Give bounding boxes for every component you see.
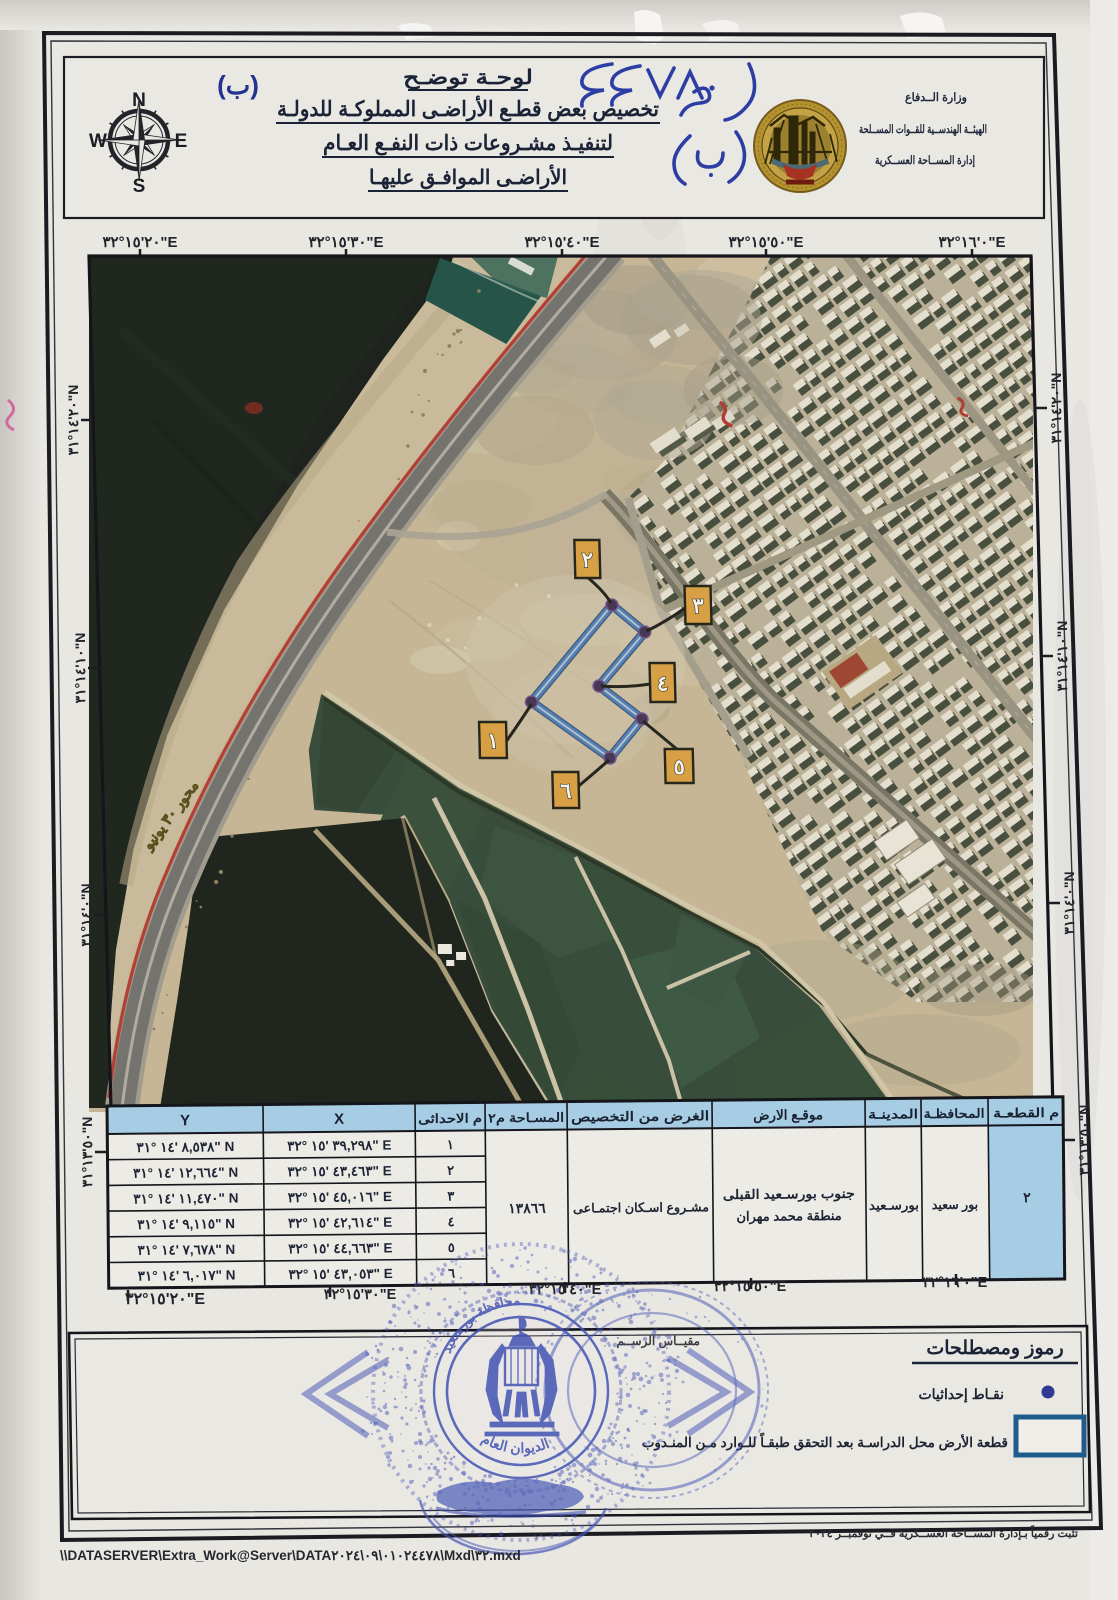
svg-text:S: S	[133, 176, 146, 197]
svg-text:رموز ومصطلحات: رموز ومصطلحات	[926, 1338, 1063, 1359]
svg-text:(ب): (ب)	[217, 70, 259, 100]
svg-text:المسـاحة م٢: المسـاحة م٢	[488, 1111, 564, 1127]
svg-text:\\DATASERVER\Extra_Work@Server: \\DATASERVER\Extra_Work@Server\DATA٢٠٢٤\…	[60, 1548, 521, 1563]
svg-text:م الاحداثى: م الاحداثى	[418, 1111, 482, 1127]
svg-text:٣٢° ١٥' ٤٤,٦٦٣" E: ٣٢° ١٥' ٤٤,٦٦٣" E	[288, 1240, 392, 1256]
svg-text:الأراضـى الموافـق عليهـا: الأراضـى الموافـق عليهـا	[369, 164, 567, 190]
svg-text:قطعة الأرض محل الدراسـة بعد ال: قطعة الأرض محل الدراسـة بعد التحقق طبقـا…	[642, 1432, 1008, 1451]
svg-text:م القطعـة: م القطعـة	[993, 1106, 1059, 1122]
svg-text:وزارة الــدفاع: وزارة الــدفاع	[905, 91, 967, 105]
svg-text:E: E	[175, 131, 188, 152]
svg-text:لتنفيـذ مشـروعات ذات النفـع ال: لتنفيـذ مشـروعات ذات النفـع العـام	[323, 132, 613, 156]
svg-text:٣٢°١٥'٣٠"E: ٣٢°١٥'٣٠"E	[308, 234, 383, 251]
svg-text:٣٢°١٦'٠"E: ٣٢°١٦'٠"E	[923, 1275, 988, 1291]
svg-text:٢: ٢	[1023, 1189, 1031, 1205]
svg-text:٣٢° ١٥' ٤٣,٠٥٣" E: ٣٢° ١٥' ٤٣,٠٥٣" E	[288, 1266, 392, 1282]
svg-text:٣١° ١٤' ١٢,٦٦٤" N: ٣١° ١٤' ١٢,٦٦٤" N	[133, 1165, 238, 1181]
svg-text:٣١°١٤'١٠"N: ٣١°١٤'١٠"N	[72, 633, 88, 704]
svg-text:بور سعيد: بور سعيد	[932, 1198, 978, 1213]
svg-text:٣١°١٣'٥٠"N: ٣١°١٣'٥٠"N	[1076, 1105, 1092, 1176]
svg-text:المحافظـة: المحافظـة	[924, 1107, 985, 1122]
svg-text:٣٢° ١٥' ٤٣,٤٦٣" E: ٣٢° ١٥' ٤٣,٤٦٣" E	[287, 1163, 391, 1179]
svg-text:الغرض من التخصيص: الغرض من التخصيص	[571, 1108, 709, 1125]
svg-text:٣: ٣	[447, 1188, 454, 1203]
svg-text:٣٢°١٥'٥٠"E: ٣٢°١٥'٥٠"E	[714, 1279, 787, 1295]
svg-text:موقـع الارض: موقـع الارض	[753, 1107, 823, 1124]
svg-text:منطقة محمد مهران: منطقة محمد مهران	[736, 1208, 841, 1225]
svg-text:٣١°١٤'٠"N: ٣١°١٤'٠"N	[1061, 871, 1077, 934]
svg-text:المدينـة: المدينـة	[868, 1107, 918, 1121]
svg-text:٣١°١٤'٢٠"N: ٣١°١٤'٢٠"N	[1048, 373, 1064, 444]
svg-text:٣١° ١٤' ٦,٠١٧" N: ٣١° ١٤' ٦,٠١٧" N	[138, 1268, 236, 1284]
svg-text:٣٢°١٥'٣٠"E: ٣٢°١٥'٣٠"E	[324, 1287, 397, 1303]
svg-text:٣٢°١٥'٢٠"E: ٣٢°١٥'٢٠"E	[102, 234, 177, 251]
svg-text:٣١°١٤'٢٠"N: ٣١°١٤'٢٠"N	[65, 385, 81, 456]
svg-text:٣١°١٤'١٠"N: ٣١°١٤'١٠"N	[1054, 621, 1070, 692]
svg-text:X: X	[334, 1111, 344, 1128]
svg-text:إدارة المســاحة العســكرية: إدارة المســاحة العســكرية	[875, 154, 975, 168]
svg-text:Y: Y	[180, 1112, 190, 1129]
svg-text:لوحـة توضـح: لوحـة توضـح	[403, 67, 533, 90]
svg-text:١: ١	[447, 1137, 454, 1152]
svg-text:نقـاط إحداثيات: نقـاط إحداثيات	[918, 1386, 1004, 1404]
svg-text:٣٢°١٥'٥٠"E: ٣٢°١٥'٥٠"E	[728, 234, 803, 251]
svg-text:٤: ٤	[448, 1214, 455, 1229]
svg-text:N: N	[132, 90, 146, 111]
svg-text:بورسـعيد: بورسـعيد	[869, 1198, 919, 1213]
svg-text:٣١°١٤'٠"N: ٣١°١٤'٠"N	[78, 883, 94, 946]
svg-text:٣٢°١٥'٤٠"E: ٣٢°١٥'٤٠"E	[524, 234, 599, 251]
svg-text:٥: ٥	[448, 1240, 455, 1255]
svg-text:٣٢° ١٥' ٤٥,٠١٦" E: ٣٢° ١٥' ٤٥,٠١٦" E	[288, 1189, 392, 1205]
svg-text:٣٢° ١٥' ٣٩,٢٩٨" E: ٣٢° ١٥' ٣٩,٢٩٨" E	[287, 1138, 391, 1154]
svg-text:٣٢°١٥'٢٠"E: ٣٢°١٥'٢٠"E	[125, 1291, 205, 1308]
svg-text:٣١° ١٤' ٧,٦٧٨" N: ٣١° ١٤' ٧,٦٧٨" N	[137, 1242, 235, 1258]
svg-text:٢: ٢	[447, 1163, 454, 1178]
svg-text:١٣٨٦٦: ١٣٨٦٦	[508, 1200, 546, 1216]
svg-text:تخصيص بعض قطـع الأراضـى المملو: تخصيص بعض قطـع الأراضـى المملوكـة للدولـ…	[277, 95, 659, 122]
svg-text:٦: ٦	[448, 1265, 455, 1280]
svg-text:الهيئــة الهندســية للقــوات ا: الهيئــة الهندســية للقــوات المســلحة	[859, 123, 987, 137]
svg-text:جنوب بورسـعيد القبلى: جنوب بورسـعيد القبلى	[723, 1186, 855, 1203]
svg-text:تثبت رقمياً بـإدارة المســاحة: تثبت رقمياً بـإدارة المســاحة العســكرية…	[809, 1525, 1078, 1541]
svg-text:٣١° ١٤' ١١,٤٧٠" N: ٣١° ١٤' ١١,٤٧٠" N	[133, 1191, 238, 1207]
svg-text:٣١°١٣'٥٠"N: ٣١°١٣'٥٠"N	[79, 1117, 95, 1188]
svg-text:٣١° ١٤' ٨,٥٣٨" N: ٣١° ١٤' ٨,٥٣٨" N	[136, 1139, 234, 1155]
svg-text:W: W	[89, 131, 107, 152]
svg-text:٣١° ١٤' ٩,١١٥" N: ٣١° ١٤' ٩,١١٥" N	[137, 1216, 235, 1232]
svg-text:٣٢° ١٥' ٤٢,٦١٤" E: ٣٢° ١٥' ٤٢,٦١٤" E	[288, 1215, 392, 1231]
svg-text:٣٢°١٦'٠"E: ٣٢°١٦'٠"E	[939, 234, 1006, 251]
svg-text:مشـروع اسـكان اجتمـاعى: مشـروع اسـكان اجتمـاعى	[573, 1200, 709, 1216]
